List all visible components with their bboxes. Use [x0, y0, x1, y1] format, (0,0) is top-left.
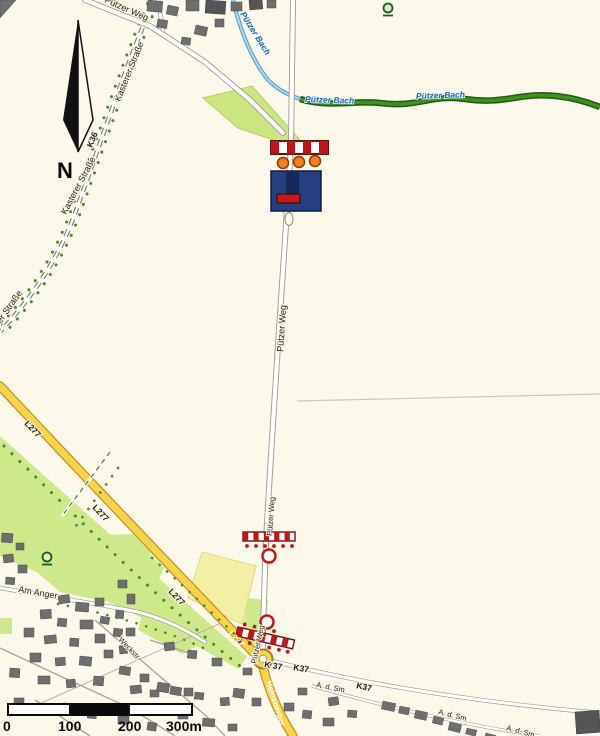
building — [140, 674, 149, 682]
building — [215, 19, 224, 27]
building — [575, 710, 600, 734]
building — [323, 718, 334, 726]
barrier-dot — [263, 544, 267, 548]
scale-tick-300m: 300m — [166, 718, 202, 734]
building — [30, 653, 41, 662]
sign-stem — [286, 171, 299, 196]
building — [233, 688, 245, 698]
building — [298, 688, 307, 695]
barrier-lamp — [294, 157, 305, 168]
building — [69, 638, 79, 647]
barrier-stripe — [303, 141, 311, 154]
building — [44, 635, 57, 644]
building — [55, 657, 66, 666]
building — [231, 2, 242, 11]
map-canvas: N Pützer Weg Kasterer Straße K36 Kastere… — [0, 0, 600, 736]
building — [228, 724, 237, 731]
barrier-dot — [245, 544, 249, 548]
building — [252, 698, 261, 706]
water-label-putzer-bach: Pützer Bach — [305, 94, 354, 106]
building — [1, 533, 13, 543]
scale-bar-segment — [69, 704, 130, 715]
building — [212, 658, 222, 666]
building — [164, 642, 175, 651]
wayside-cross-head — [384, 4, 393, 13]
building — [184, 688, 193, 696]
map-svg: N Pützer Weg Kasterer Straße K36 Kastere… — [0, 0, 600, 736]
building — [186, 0, 199, 11]
building — [127, 594, 135, 604]
building — [243, 668, 252, 675]
barrier-stripe — [253, 532, 258, 541]
closure-circle — [263, 550, 276, 563]
building — [284, 703, 294, 711]
barrier-stripe — [274, 532, 279, 541]
building — [79, 656, 92, 666]
building — [328, 697, 339, 706]
building — [157, 19, 168, 29]
building — [75, 602, 89, 612]
building — [147, 722, 157, 731]
building — [170, 686, 182, 696]
scale-tick-200: 200 — [118, 718, 142, 734]
building — [18, 565, 27, 573]
building — [166, 5, 179, 16]
building — [194, 692, 204, 700]
building — [126, 628, 135, 636]
barrier-top-icon — [271, 141, 328, 169]
building — [80, 620, 93, 629]
wayside-cross-head — [43, 553, 52, 562]
barrier-stripe — [285, 532, 290, 541]
scale-tick-100: 100 — [58, 718, 82, 734]
building — [66, 679, 76, 688]
building — [58, 594, 70, 603]
building — [150, 690, 159, 697]
building — [347, 710, 357, 718]
building — [5, 577, 15, 585]
scale-tick-0: 0 — [3, 718, 11, 734]
building — [187, 650, 197, 659]
building — [95, 598, 104, 606]
building — [202, 718, 215, 727]
field-edge-patch — [0, 618, 12, 634]
building — [3, 554, 14, 563]
barrier-stripe — [319, 141, 328, 154]
building — [100, 616, 110, 624]
building — [147, 0, 163, 13]
barrier-lamp — [310, 156, 321, 167]
building — [38, 676, 50, 684]
building — [130, 685, 142, 694]
barrier-stripe — [271, 141, 279, 154]
building — [249, 0, 263, 10]
barrier-dot — [281, 544, 285, 548]
building — [40, 609, 52, 619]
building — [95, 634, 105, 643]
building — [118, 580, 127, 588]
water-label-putzer-bach: Pützer Bach — [416, 89, 465, 101]
dead-end-sign-icon — [271, 171, 321, 211]
building — [205, 0, 226, 14]
sign-red-bar — [277, 194, 300, 203]
barrier-dot — [290, 544, 294, 548]
building — [104, 650, 113, 658]
building — [24, 628, 34, 637]
barrier-dot — [254, 544, 258, 548]
building — [9, 668, 20, 678]
building — [267, 0, 276, 8]
barrier-dot — [272, 544, 276, 548]
building — [57, 618, 67, 627]
barrier-lamp — [278, 158, 289, 169]
turning-loop — [285, 213, 293, 226]
building — [16, 543, 24, 550]
barrier-stripe — [287, 141, 295, 154]
building — [93, 676, 104, 686]
barrier-stripe — [243, 532, 248, 541]
north-label: N — [57, 158, 73, 183]
building — [181, 37, 191, 45]
building — [115, 610, 124, 619]
building — [119, 666, 131, 675]
building — [302, 710, 312, 719]
building — [220, 697, 230, 706]
